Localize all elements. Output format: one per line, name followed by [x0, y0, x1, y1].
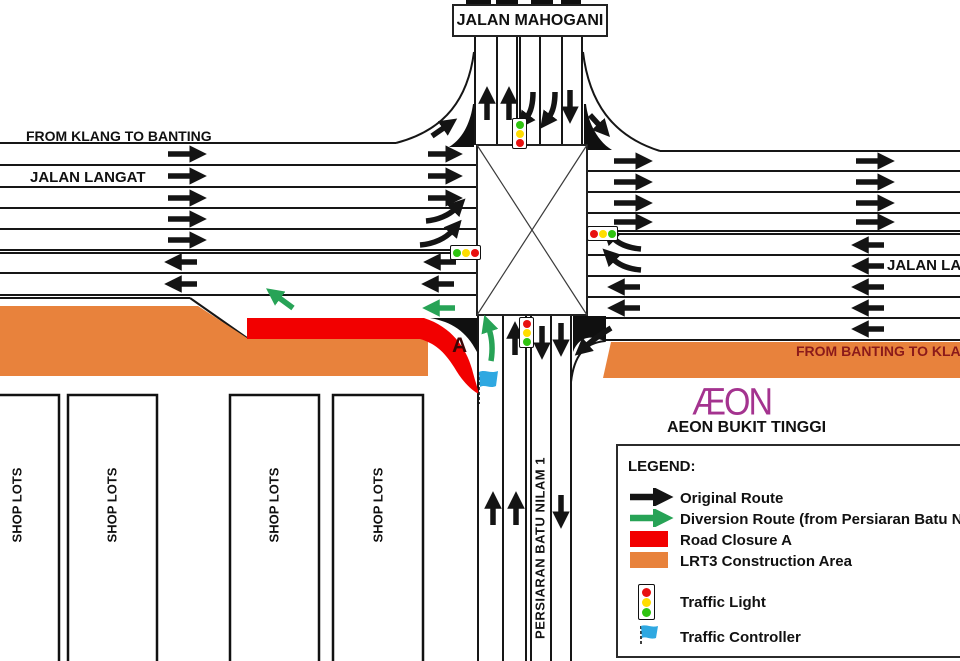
aeon-bukit-tinggi-label: AEON BUKIT TINGGI: [667, 420, 826, 436]
shop-lots-label-2: SHOP LOTS: [106, 468, 119, 543]
shop-lots-label-3: SHOP LOTS: [268, 468, 281, 543]
legend-box: LEGEND: Original Route Diversion Route (…: [616, 444, 960, 658]
aeon-logo: ÆON: [692, 383, 771, 421]
shop-lots-label-1: SHOP LOTS: [11, 468, 24, 543]
legend-item-label: LRT3 Construction Area: [680, 553, 852, 570]
road-jalan-langat-east-lanes: [583, 52, 960, 340]
legend-item-label: Diversion Route (from Persiaran Batu Nil…: [680, 511, 960, 528]
legend-item-label: Traffic Light: [680, 594, 766, 611]
traffic-controller-flag: [479, 371, 498, 404]
traffic-light-west: [450, 245, 481, 260]
jalan-mahogani-label: JALAN MAHOGANI: [457, 12, 604, 30]
legend-item-label: Road Closure A: [680, 532, 792, 549]
legend-item-label: Original Route: [680, 490, 783, 507]
legend-item-label: Traffic Controller: [680, 629, 801, 646]
traffic-light-north: [512, 118, 527, 149]
lrt3-construction-area: [0, 306, 960, 378]
flare-top-left: [396, 52, 474, 143]
jalan-langat-west-label: JALAN LANGAT: [30, 170, 146, 185]
intersection-box: [477, 145, 587, 315]
legend-item-road-closure: Road Closure A: [628, 530, 792, 550]
from-klang-to-banting-label: FROM KLANG TO BANTING: [26, 129, 212, 143]
closure-point-a-label: A: [452, 335, 467, 356]
jalan-mahogani-sign: JALAN MAHOGANI: [452, 4, 608, 37]
traffic-diversion-diagram: JALAN MAHOGANI FROM KLANG TO BANTING JAL…: [0, 0, 960, 661]
from-banting-to-klang-label: FROM BANTING TO KLANG: [796, 344, 960, 358]
legend-item-construction-area: LRT3 Construction Area: [628, 551, 852, 571]
shop-lot-blocks: [0, 395, 423, 661]
legend-item-original-route: Original Route: [628, 488, 783, 508]
legend-item-diversion-route: Diversion Route (from Persiaran Batu Nil…: [628, 509, 960, 529]
shop-lots-label-4: SHOP LOTS: [372, 468, 385, 543]
traffic-light-south: [519, 317, 534, 348]
legend-item-traffic-controller: Traffic Controller: [628, 623, 801, 651]
persiaran-batu-nilam-label: PERSIARAN BATU NILAM 1: [534, 457, 547, 639]
legend-item-traffic-light: Traffic Light: [628, 584, 766, 620]
jalan-langat-east-label: JALAN LANGAT: [887, 258, 960, 273]
legend-title: LEGEND:: [628, 458, 696, 475]
traffic-light-east: [587, 226, 618, 241]
traffic-light-icon: [628, 584, 680, 620]
